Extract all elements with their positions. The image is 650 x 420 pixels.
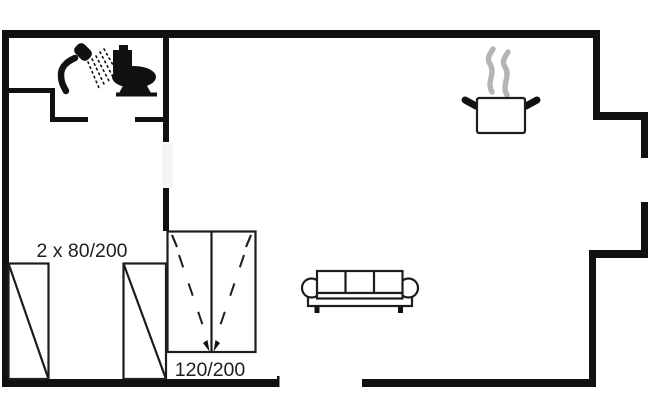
- wardrobe-dimension-label: 120/200: [175, 359, 246, 381]
- beds-dimension-label: 2 x 80/200: [36, 240, 127, 262]
- single-bed-left: [9, 264, 49, 380]
- floor-plan: 2 x 80/200 120/200: [0, 0, 650, 420]
- single-bed-right: [124, 264, 167, 380]
- toilet-icon: [112, 45, 157, 97]
- steam-icon: [488, 49, 508, 95]
- interior-walls: [9, 38, 173, 231]
- cooking-pot-icon: [465, 98, 537, 133]
- outer-walls: [2, 30, 648, 387]
- sofa-icon: [302, 271, 418, 313]
- floor-plan-drawing: 2 x 80/200 120/200: [0, 0, 650, 420]
- door-opening: [162, 143, 173, 188]
- wardrobe-icon: [168, 232, 256, 353]
- shower-icon: [61, 41, 117, 91]
